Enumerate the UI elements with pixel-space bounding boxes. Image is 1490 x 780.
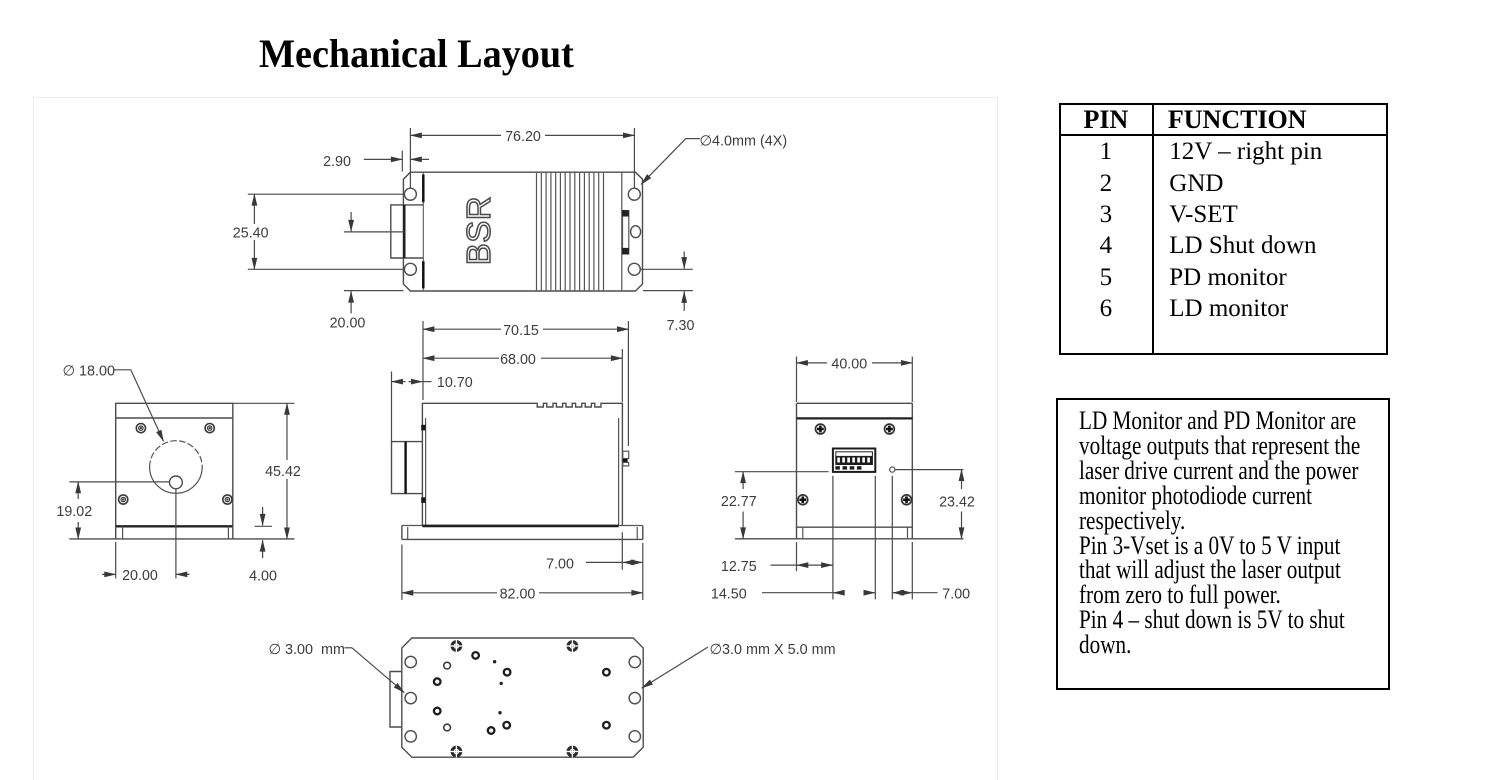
svg-text:7.30: 7.30 bbox=[667, 318, 695, 334]
svg-text:82.00: 82.00 bbox=[500, 587, 536, 603]
svg-text:∅ 3.00 mm: ∅ 3.00 mm bbox=[269, 642, 346, 658]
svg-text:7.00: 7.00 bbox=[942, 586, 970, 602]
svg-text:70.15: 70.15 bbox=[503, 323, 539, 339]
svg-text:68.00: 68.00 bbox=[500, 352, 536, 368]
svg-text:2.90: 2.90 bbox=[323, 154, 351, 170]
svg-text:20.00: 20.00 bbox=[330, 316, 366, 332]
svg-text:10.70: 10.70 bbox=[437, 375, 473, 391]
svg-text:20.00: 20.00 bbox=[122, 568, 158, 584]
svg-text:14.50: 14.50 bbox=[711, 586, 747, 602]
svg-text:7.00: 7.00 bbox=[546, 556, 574, 572]
svg-text:∅4.0mm (4X): ∅4.0mm (4X) bbox=[700, 133, 788, 149]
svg-text:40.00: 40.00 bbox=[831, 357, 867, 373]
svg-text:12.75: 12.75 bbox=[721, 559, 757, 575]
svg-text:19.02: 19.02 bbox=[56, 504, 92, 520]
svg-text:∅3.0 mm X 5.0 mm: ∅3.0 mm X 5.0 mm bbox=[710, 642, 836, 658]
svg-text:4.00: 4.00 bbox=[249, 569, 277, 585]
svg-text:45.42: 45.42 bbox=[265, 464, 301, 480]
svg-text:23.42: 23.42 bbox=[939, 495, 975, 511]
svg-text:22.77: 22.77 bbox=[721, 494, 757, 510]
svg-text:BSR: BSR bbox=[460, 196, 497, 265]
svg-text:76.20: 76.20 bbox=[505, 129, 541, 145]
svg-text:25.40: 25.40 bbox=[233, 225, 269, 241]
svg-text:∅ 18.00: ∅ 18.00 bbox=[63, 364, 116, 380]
